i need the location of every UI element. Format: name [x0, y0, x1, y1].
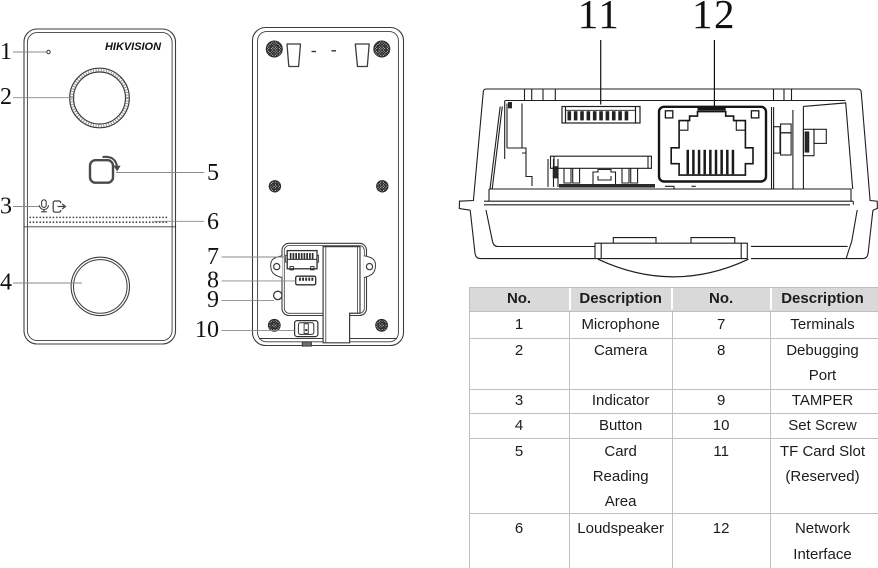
svg-text:11: 11: [578, 0, 620, 37]
svg-text:7: 7: [207, 244, 219, 270]
svg-text:3: 3: [0, 194, 12, 220]
svg-text:12: 12: [692, 0, 736, 37]
svg-text:6: 6: [207, 209, 219, 235]
svg-text:1: 1: [0, 39, 12, 65]
svg-text:10: 10: [195, 317, 219, 343]
svg-text:5: 5: [207, 160, 219, 186]
svg-text:2: 2: [0, 84, 12, 110]
svg-text:HIKVISION: HIKVISION: [105, 41, 161, 53]
svg-text:9: 9: [207, 287, 219, 313]
svg-text:4: 4: [0, 270, 12, 296]
